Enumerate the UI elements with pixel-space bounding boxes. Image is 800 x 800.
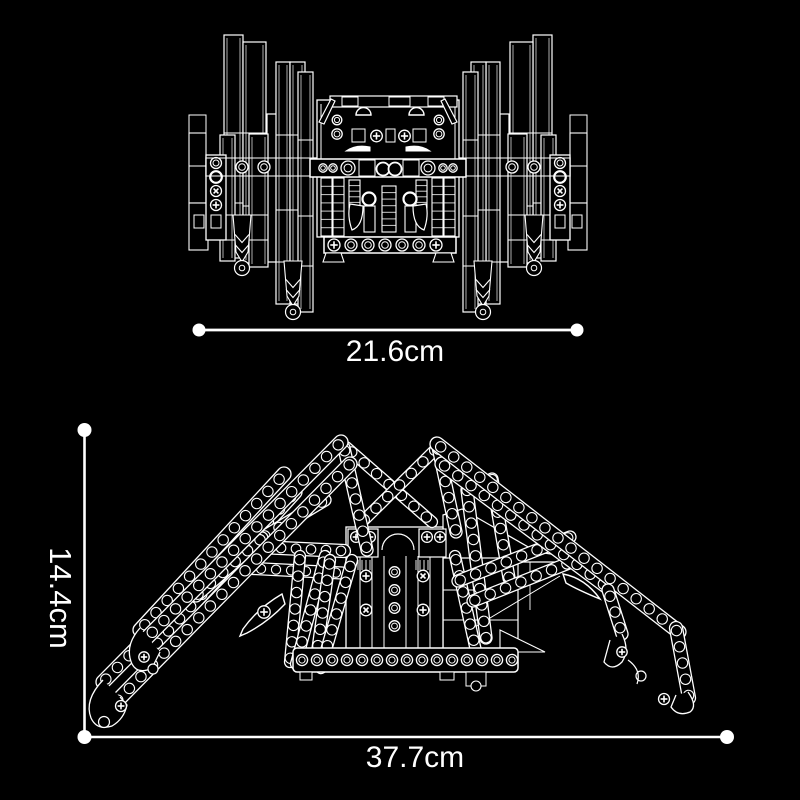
svg-text:37.7cm: 37.7cm bbox=[366, 741, 464, 774]
svg-text:14.4cm: 14.4cm bbox=[43, 547, 78, 649]
svg-text:21.6cm: 21.6cm bbox=[346, 335, 444, 368]
